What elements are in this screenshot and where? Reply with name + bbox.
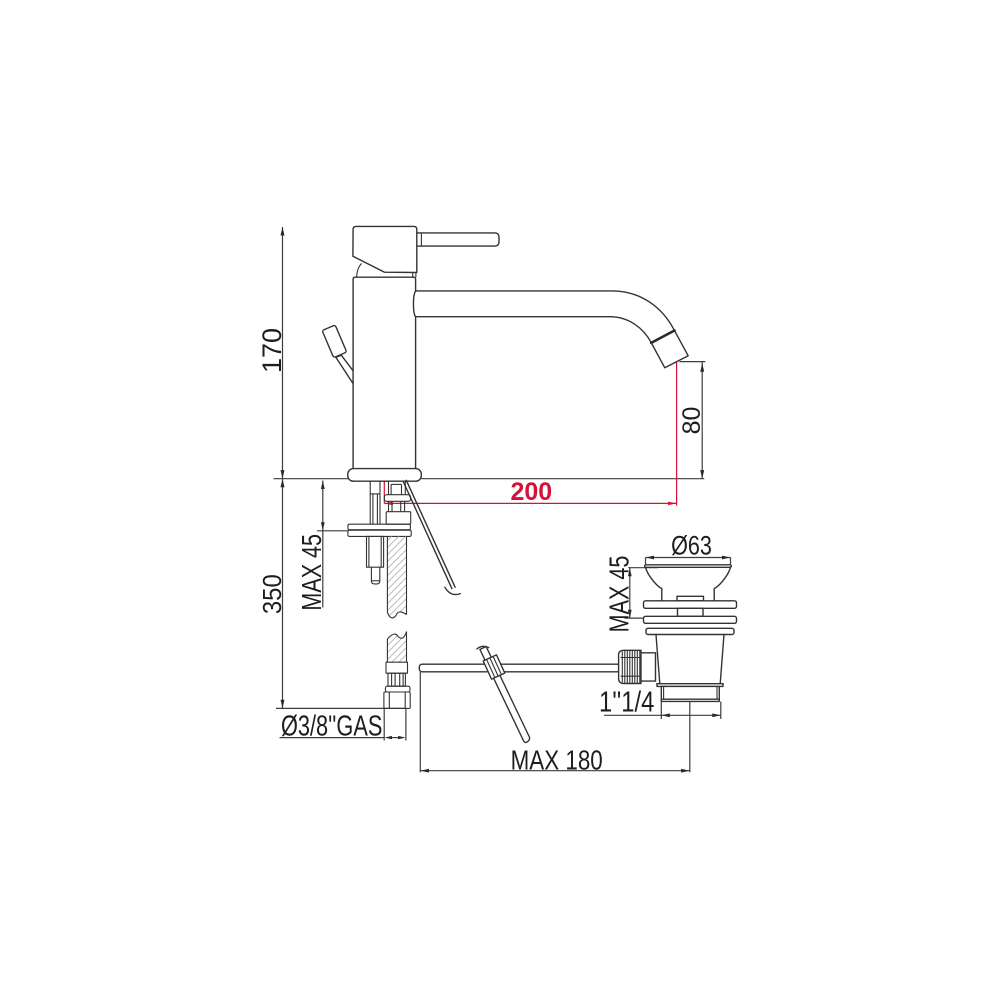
svg-text:170: 170 — [257, 328, 287, 373]
svg-text:80: 80 — [678, 407, 706, 435]
svg-text:350: 350 — [258, 574, 287, 614]
svg-text:MAX 45: MAX 45 — [604, 556, 635, 633]
svg-text:1''1/4: 1''1/4 — [599, 685, 654, 718]
svg-text:Ø63: Ø63 — [671, 531, 712, 561]
svg-text:MAX 45: MAX 45 — [296, 534, 327, 611]
svg-text:Ø3/8''GAS: Ø3/8''GAS — [281, 710, 382, 742]
svg-text:200: 200 — [511, 478, 553, 506]
svg-text:MAX 180: MAX 180 — [511, 745, 603, 776]
